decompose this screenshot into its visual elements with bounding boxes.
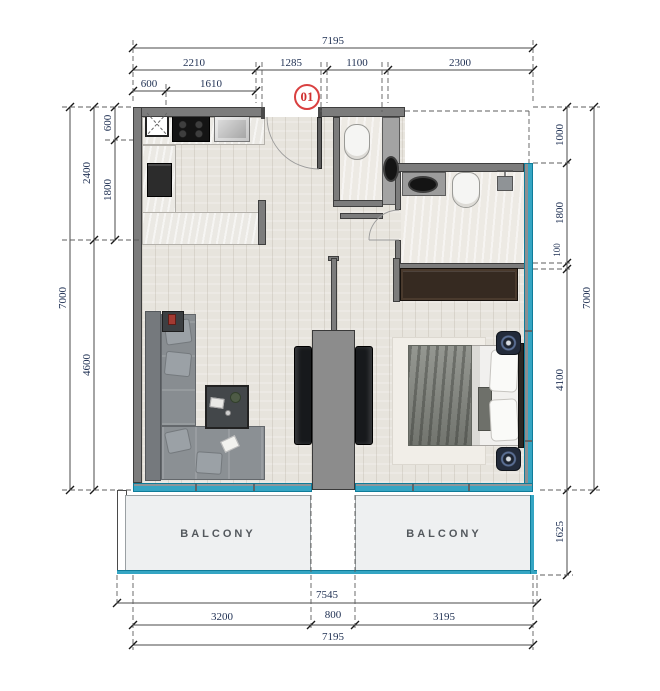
window-mullion <box>195 484 197 491</box>
floor-plan-canvas: BALCONY BALCONY 01 7195 2210 1285 1100 2… <box>0 0 660 691</box>
bed-pillow <box>489 349 519 392</box>
dim-top-1285: 1285 <box>280 57 303 69</box>
partition-stub <box>331 258 337 332</box>
dim-bottom-7545: 7545 <box>316 589 339 601</box>
wc-toilet <box>344 124 370 160</box>
tv-living <box>294 346 312 445</box>
window-mullion <box>525 440 532 442</box>
dim-top-2210: 2210 <box>183 57 206 69</box>
dim-left-600: 600 <box>102 114 114 131</box>
left-wall <box>133 107 142 483</box>
dim-top-2300: 2300 <box>449 57 472 69</box>
balcony-right: BALCONY <box>355 495 533 572</box>
shower-head <box>497 176 513 191</box>
balcony-left-label: BALCONY <box>126 496 310 571</box>
window-mullion <box>468 484 470 491</box>
dim-right-100: 100 <box>552 243 562 257</box>
dim-top-600: 600 <box>141 78 158 90</box>
sofa-pillow <box>164 351 192 378</box>
wc-left-wall <box>333 117 340 202</box>
dim-bottom-3200: 3200 <box>211 611 234 623</box>
bathroom-basin <box>408 176 438 193</box>
top-wall-left <box>133 107 264 117</box>
top-right-notch <box>405 84 555 163</box>
tv-partition <box>312 330 355 490</box>
balcony-right-rail <box>530 495 534 574</box>
nightstand <box>496 331 521 355</box>
unit-number-text: 01 <box>301 89 314 105</box>
dim-top-1100: 1100 <box>346 57 368 69</box>
window-mullion <box>525 330 532 332</box>
bed-headboard <box>518 343 524 448</box>
kitchen-sink <box>214 116 250 142</box>
dim-top-total: 7195 <box>322 35 345 47</box>
bathroom-toilet <box>452 172 480 208</box>
refrigerator <box>147 163 172 197</box>
wc-basin <box>383 156 399 182</box>
dim-bottom-3195: 3195 <box>433 611 456 623</box>
nightstand <box>496 447 521 471</box>
coffee-table-cup <box>225 410 231 416</box>
sofa-back <box>145 311 161 481</box>
dim-top-1610: 1610 <box>200 78 223 90</box>
dim-right-1625: 1625 <box>554 521 566 544</box>
living-window-wall <box>133 483 312 492</box>
tv-bedroom <box>355 346 373 445</box>
bathroom-top-wall <box>396 163 524 172</box>
window-mullion <box>253 484 255 491</box>
dim-right-4100: 4100 <box>554 369 566 392</box>
wardrobe <box>400 268 518 301</box>
top-wall-right <box>319 107 405 117</box>
entrance-door-leaf <box>317 117 322 169</box>
bed-pillow <box>489 398 519 441</box>
wc-pocket-wall-b <box>340 213 383 219</box>
bedroom-window-wall <box>355 483 533 492</box>
wc-pocket-wall-a <box>333 200 383 207</box>
kitchen-peninsula <box>142 212 265 245</box>
dim-right-total: 7000 <box>581 287 593 310</box>
dim-left-1800: 1800 <box>102 179 114 202</box>
dim-bottom-total: 7195 <box>322 631 345 643</box>
dim-left-total: 7000 <box>57 287 69 310</box>
balcony-railing <box>117 570 537 574</box>
dim-left-4600: 4600 <box>81 354 93 377</box>
window-mullion <box>412 484 414 491</box>
entry-jamb-left <box>261 107 265 119</box>
side-table-decor <box>168 314 176 325</box>
bed-blanket <box>408 345 472 446</box>
kitchen-stub-wall <box>258 200 266 245</box>
coffee-table-papers <box>209 397 224 409</box>
balcony-right-label: BALCONY <box>356 496 532 571</box>
dim-right-1000: 1000 <box>554 124 566 147</box>
coffee-table-plant <box>230 392 241 403</box>
dim-right-1800: 1800 <box>554 202 566 225</box>
dim-bottom-800: 800 <box>325 609 342 621</box>
bedroom-entry-wall <box>393 258 400 302</box>
balcony-left: BALCONY <box>125 495 311 572</box>
sofa-pillow <box>195 451 222 475</box>
cooktop <box>172 116 210 142</box>
unit-number-badge: 01 <box>294 84 320 110</box>
dim-left-2400: 2400 <box>81 162 93 185</box>
